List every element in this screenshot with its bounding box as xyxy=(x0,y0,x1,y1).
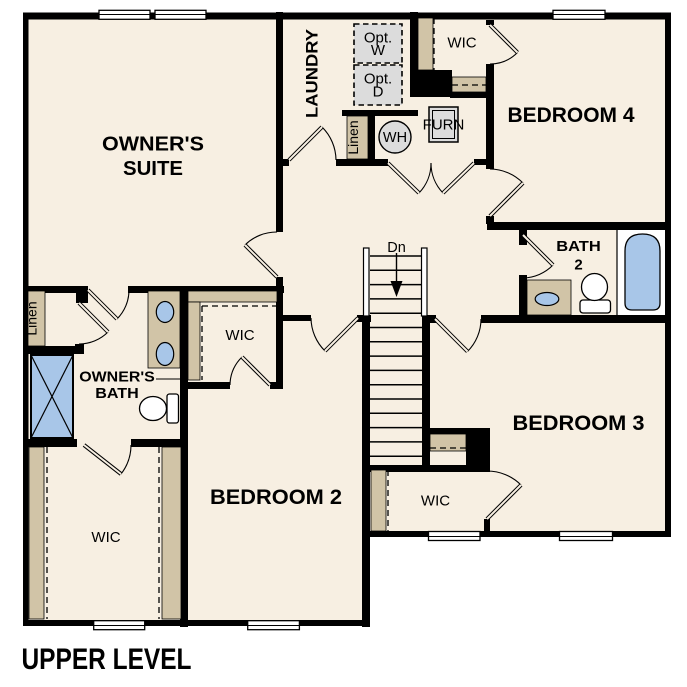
svg-text:OWNER'S: OWNER'S xyxy=(102,134,204,156)
svg-text:BATH: BATH xyxy=(556,238,601,255)
svg-text:BEDROOM 3: BEDROOM 3 xyxy=(513,412,645,435)
svg-text:Linen: Linen xyxy=(24,301,40,335)
svg-text:2: 2 xyxy=(574,257,582,274)
svg-text:WIC: WIC xyxy=(91,529,120,546)
svg-text:WIC: WIC xyxy=(225,327,254,344)
svg-text:FURN: FURN xyxy=(423,117,465,134)
svg-text:W: W xyxy=(371,42,386,59)
svg-text:Linen: Linen xyxy=(345,120,361,154)
svg-text:WH: WH xyxy=(383,130,407,146)
svg-text:D: D xyxy=(373,84,384,101)
svg-text:WIC: WIC xyxy=(421,493,450,510)
svg-text:OWNER'S: OWNER'S xyxy=(79,369,155,386)
svg-text:WIC: WIC xyxy=(447,35,476,52)
svg-text:SUITE: SUITE xyxy=(123,158,183,180)
svg-text:BATH: BATH xyxy=(95,385,139,402)
svg-text:BEDROOM 2: BEDROOM 2 xyxy=(210,486,342,509)
svg-text:LAUNDRY: LAUNDRY xyxy=(303,28,322,118)
svg-text:UPPER LEVEL: UPPER LEVEL xyxy=(22,643,192,676)
svg-text:Dn: Dn xyxy=(387,240,406,256)
svg-text:BEDROOM 4: BEDROOM 4 xyxy=(508,104,635,127)
